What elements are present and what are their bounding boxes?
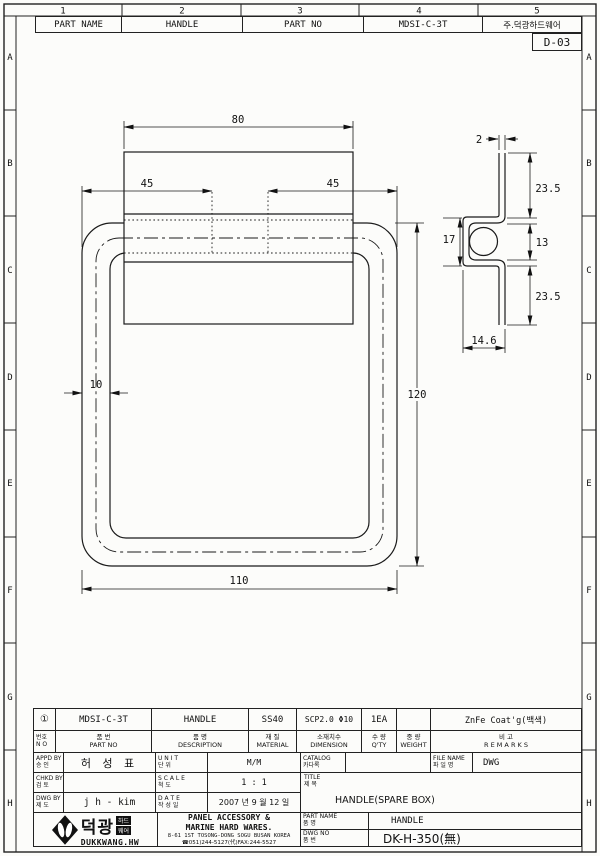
maker-address: PANEL ACCESSORY & MARINE HARD WARES. 8-6…: [158, 813, 300, 847]
scale-value: 1 : 1: [207, 772, 301, 793]
maker-address-cell: PANEL ACCESSORY & MARINE HARD WARES. 8-6…: [157, 812, 301, 847]
dim-80: 80: [232, 114, 245, 126]
zone-row-f-right: F: [586, 586, 591, 596]
dim-23-5-bottom: 23.5: [535, 291, 560, 303]
maker-dwg-no-ko: 품 번: [303, 838, 316, 845]
zone-row-a-left: A: [7, 53, 13, 63]
logo-sub-1: 하드: [116, 816, 131, 825]
zone-col-4: 4: [416, 7, 421, 17]
dwg-by-ko: 제 도: [36, 803, 49, 810]
parts-row-material: SS40: [248, 708, 297, 731]
parts-row-weight: [396, 708, 431, 731]
tube-section-circle: [470, 228, 498, 256]
maker-line2: MARINE HARD WARES.: [158, 823, 300, 833]
header-part-name-value: HANDLE: [121, 16, 243, 33]
col-header-dimension-en: DIMENSION: [310, 742, 348, 750]
zone-row-d-left: D: [7, 373, 12, 383]
zone-row-g-right: G: [586, 693, 591, 703]
dim-17: 17: [443, 234, 456, 246]
header-company: 주.덕광하드웨어: [482, 16, 582, 33]
dim-2: 2: [476, 134, 482, 146]
col-header-no-en: N O: [36, 742, 47, 749]
logo-sub-2: 웨어: [116, 826, 131, 835]
title-value: HANDLE(SPARE BOX): [335, 795, 435, 806]
zone-row-b-right: B: [586, 159, 591, 169]
col-header-part-no: 품 번PART NO: [55, 730, 152, 753]
dukkwang-diamond-icon: [52, 815, 78, 845]
maker-line1: PANEL ACCESSORY &: [158, 813, 300, 823]
col-header-part-no-en: PART NO: [89, 742, 117, 750]
zone-row-g-left: G: [7, 693, 12, 703]
col-header-material-en: MATERIAL: [256, 742, 288, 750]
dim-45-right: 45: [327, 178, 340, 190]
maker-line3: 8-61 1ST TOSONG-DONG SOGU BUSAN KOREA: [158, 833, 300, 840]
logo-english: DUKKWANG.HW: [81, 838, 139, 847]
logo-korean: 덕광: [81, 813, 114, 838]
col-header-remarks: 비 고R E M A R K S: [430, 730, 582, 753]
zone-col-numbers: 1 2 3 4 5: [60, 7, 539, 17]
catalog-ko: 카다록: [303, 763, 320, 770]
header-part-name-label: PART NAME: [35, 16, 122, 33]
appd-by-ko: 승 인: [36, 763, 49, 770]
col-header-description: 품 명DESCRIPTION: [151, 730, 249, 753]
scale-label: S C A L E척 도: [155, 772, 208, 793]
logo-text: 덕광 하드 웨어 DUKKWANG.HW: [81, 813, 139, 847]
col-header-weight: 중 량WEIGHT: [396, 730, 431, 753]
zone-row-h-right: H: [586, 799, 591, 809]
chkd-by-value: [63, 772, 156, 793]
title-box: TITLE 제 목 HANDLE(SPARE BOX): [300, 772, 582, 813]
chkd-by-label: CHKD BY검 토: [33, 772, 64, 793]
unit-label: U N I T단 위: [155, 752, 208, 773]
zone-row-letters-right: A B C D E F G H: [586, 53, 592, 809]
parts-row-no: ①: [33, 708, 56, 731]
col-header-remarks-en: R E M A R K S: [484, 742, 528, 750]
dim-10: 10: [90, 379, 103, 391]
header-part-no-label: PART NO: [242, 16, 364, 33]
sheet-number-box: D-03: [532, 33, 582, 51]
dwg-by-label: DWG BY제 도: [33, 792, 64, 813]
file-name-value: DWG: [472, 752, 582, 773]
maker-part-name-value: HANDLE: [368, 812, 582, 830]
maker-dwg-no-value: DK-H-350(無): [368, 829, 582, 847]
dim-23-5-top: 23.5: [535, 183, 560, 195]
col-header-no: 번호N O: [33, 730, 56, 753]
front-view-handle-loop: [82, 152, 397, 566]
title-ko: 제 목: [304, 781, 320, 788]
file-name-ko: 파 일 명: [433, 763, 453, 770]
date-value: 2007 년 9 월 12 일: [207, 792, 301, 813]
zone-row-d-right: D: [586, 373, 591, 383]
dim-45-left: 45: [141, 178, 154, 190]
zone-row-c-left: C: [7, 266, 12, 276]
col-header-dimension: 소재치수DIMENSION: [296, 730, 362, 753]
maker-line4: ☎051)244-5127(代)FAX:244-5527: [158, 840, 300, 847]
dwg-by-value: j h - kim: [63, 792, 156, 813]
file-name-label: FILE NAME파 일 명: [430, 752, 473, 773]
parts-row-qty: 1EA: [361, 708, 397, 731]
zone-col-1: 1: [60, 7, 65, 17]
drawing-sheet: 1 2 3 4 5 A B C D E F G H A B C D E F G …: [0, 0, 600, 856]
col-header-material: 재 질MATERIAL: [248, 730, 297, 753]
parts-row-dimension: SCP2.0 Φ10: [296, 708, 362, 731]
maker-part-name-label: PART NAME품 명: [300, 812, 369, 830]
dim-110: 110: [230, 575, 249, 587]
col-header-qty: 수 량Q'TY: [361, 730, 397, 753]
zone-row-letters-left: A B C D E F G H: [7, 53, 13, 809]
maker-logo-cell: 덕광 하드 웨어 DUKKWANG.HW: [33, 812, 158, 847]
zone-row-f-left: F: [7, 586, 12, 596]
scale-ko: 척 도: [158, 783, 171, 790]
section-view-dimensions: [443, 135, 537, 353]
appd-by-label: APPD BY승 인: [33, 752, 64, 773]
logo-korean-sub: 하드 웨어: [116, 816, 131, 835]
date-ko: 작 성 일: [158, 803, 178, 810]
dim-120: 120: [408, 389, 427, 401]
unit-ko: 단 위: [158, 763, 171, 770]
zone-row-b-left: B: [7, 159, 12, 169]
section-view-profile: [463, 153, 505, 325]
dim-13: 13: [536, 237, 549, 249]
parts-row-part-no: MDSI-C-3T: [55, 708, 152, 731]
col-header-desc-en: DESCRIPTION: [178, 742, 222, 750]
zone-row-e-right: E: [586, 479, 591, 489]
col-header-qty-en: Q'TY: [372, 742, 387, 750]
maker-dwg-no-label: DWG NO품 번: [300, 829, 369, 847]
catalog-value: [345, 752, 431, 773]
parts-row-remarks: ZnFe Coat'g(백색): [430, 708, 582, 731]
title-label: TITLE 제 목: [304, 774, 320, 788]
zone-row-e-left: E: [7, 479, 12, 489]
col-header-weight-en: WEIGHT: [400, 742, 426, 750]
zone-row-c-right: C: [586, 266, 591, 276]
zone-row-a-right: A: [586, 53, 592, 63]
date-label: D A T E작 성 일: [155, 792, 208, 813]
zone-row-h-left: H: [7, 799, 12, 809]
header-part-no-value: MDSI-C-3T: [363, 16, 483, 33]
chkd-by-ko: 검 토: [36, 783, 49, 790]
dim-14-6: 14.6: [471, 335, 496, 347]
zone-col-2: 2: [179, 7, 184, 17]
parts-row-description: HANDLE: [151, 708, 249, 731]
unit-value: M/M: [207, 752, 301, 773]
zone-col-3: 3: [297, 7, 302, 17]
zone-col-5: 5: [534, 7, 539, 17]
catalog-label: CATALOG카다록: [300, 752, 346, 773]
maker-logo: 덕광 하드 웨어 DUKKWANG.HW: [52, 813, 139, 847]
maker-part-name-ko: 품 명: [303, 821, 316, 828]
appd-by-value: 허 성 표: [63, 752, 156, 773]
